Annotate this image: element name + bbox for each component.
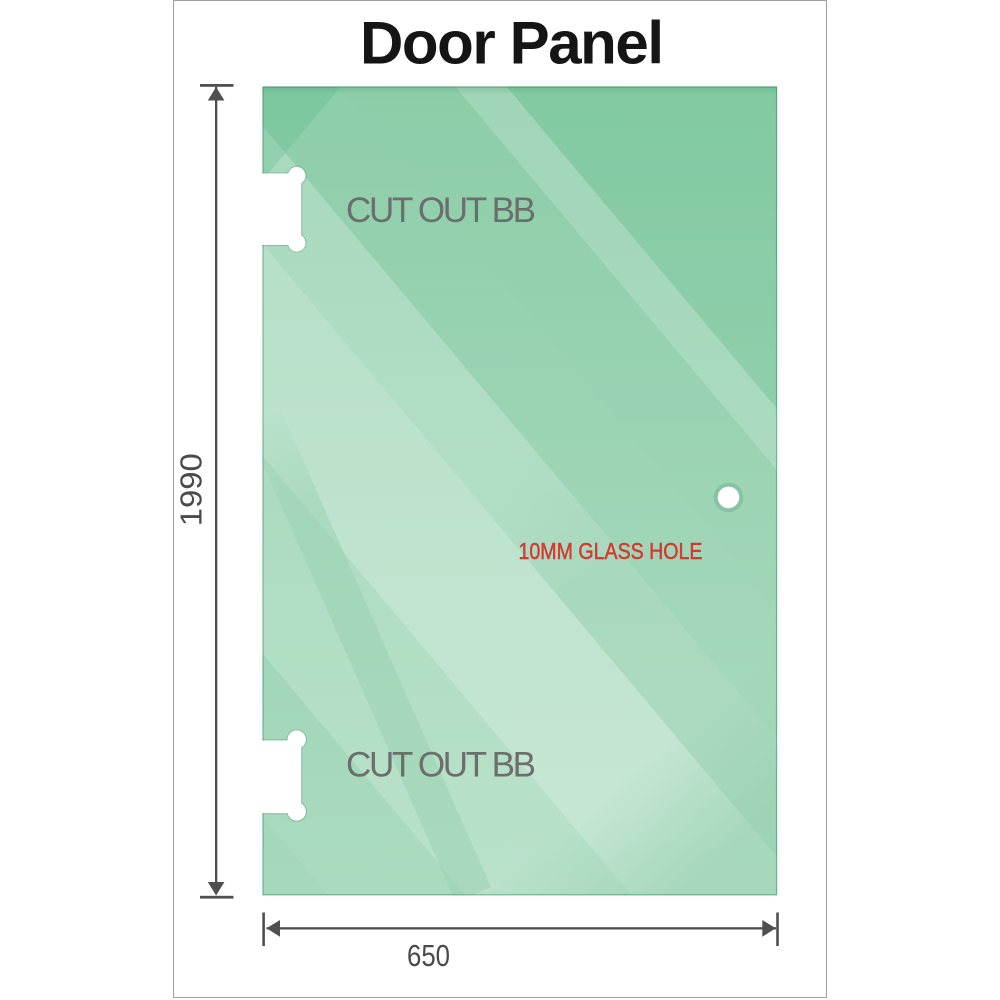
svg-text:Door Panel: Door Panel — [360, 10, 664, 77]
svg-text:10MM GLASS HOLE: 10MM GLASS HOLE — [519, 538, 703, 564]
svg-text:1990: 1990 — [173, 453, 208, 526]
svg-text:CUT OUT BB: CUT OUT BB — [346, 746, 536, 785]
svg-text:CUT OUT BB: CUT OUT BB — [346, 191, 536, 230]
svg-text:650: 650 — [407, 938, 450, 973]
